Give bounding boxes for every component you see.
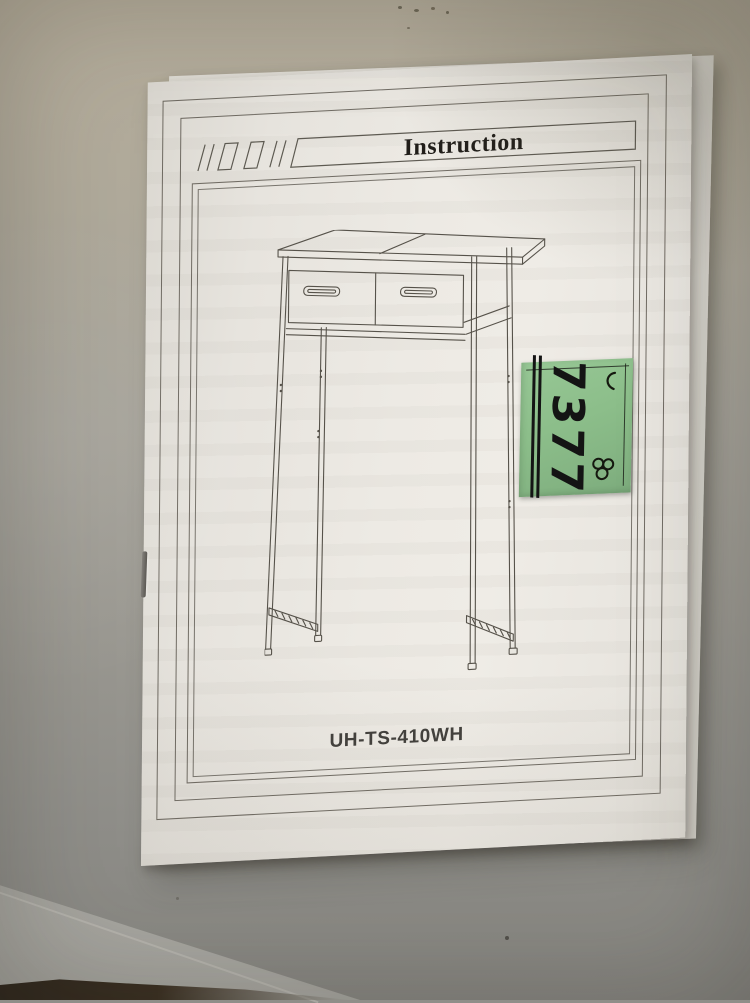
speck — [505, 936, 509, 940]
speck — [407, 27, 410, 29]
instruction-page: Instruction — [141, 54, 692, 866]
furniture-illustration — [264, 219, 550, 683]
hatch-logo-icon — [198, 140, 286, 171]
table-legs — [264, 244, 520, 680]
green-label: 7377 — [519, 358, 633, 497]
table-edge-highlight — [0, 860, 360, 1000]
screw-dots — [279, 360, 512, 521]
label-border-line-right — [623, 363, 626, 485]
drawer-handle-right-icon — [400, 287, 437, 297]
check-mark-icon — [600, 370, 620, 393]
staple — [141, 551, 148, 597]
speck — [398, 6, 402, 9]
clover-scribble-icon — [589, 456, 617, 483]
speck — [446, 11, 449, 14]
side-rails — [269, 595, 514, 654]
speck — [431, 7, 435, 10]
speck — [176, 897, 179, 900]
speck — [414, 9, 419, 12]
label-number: 7377 — [531, 355, 591, 501]
drawer-handle-left-icon — [303, 286, 340, 296]
drawer-cabinet — [286, 259, 511, 350]
floor-surface: Instruction — [0, 0, 750, 1000]
